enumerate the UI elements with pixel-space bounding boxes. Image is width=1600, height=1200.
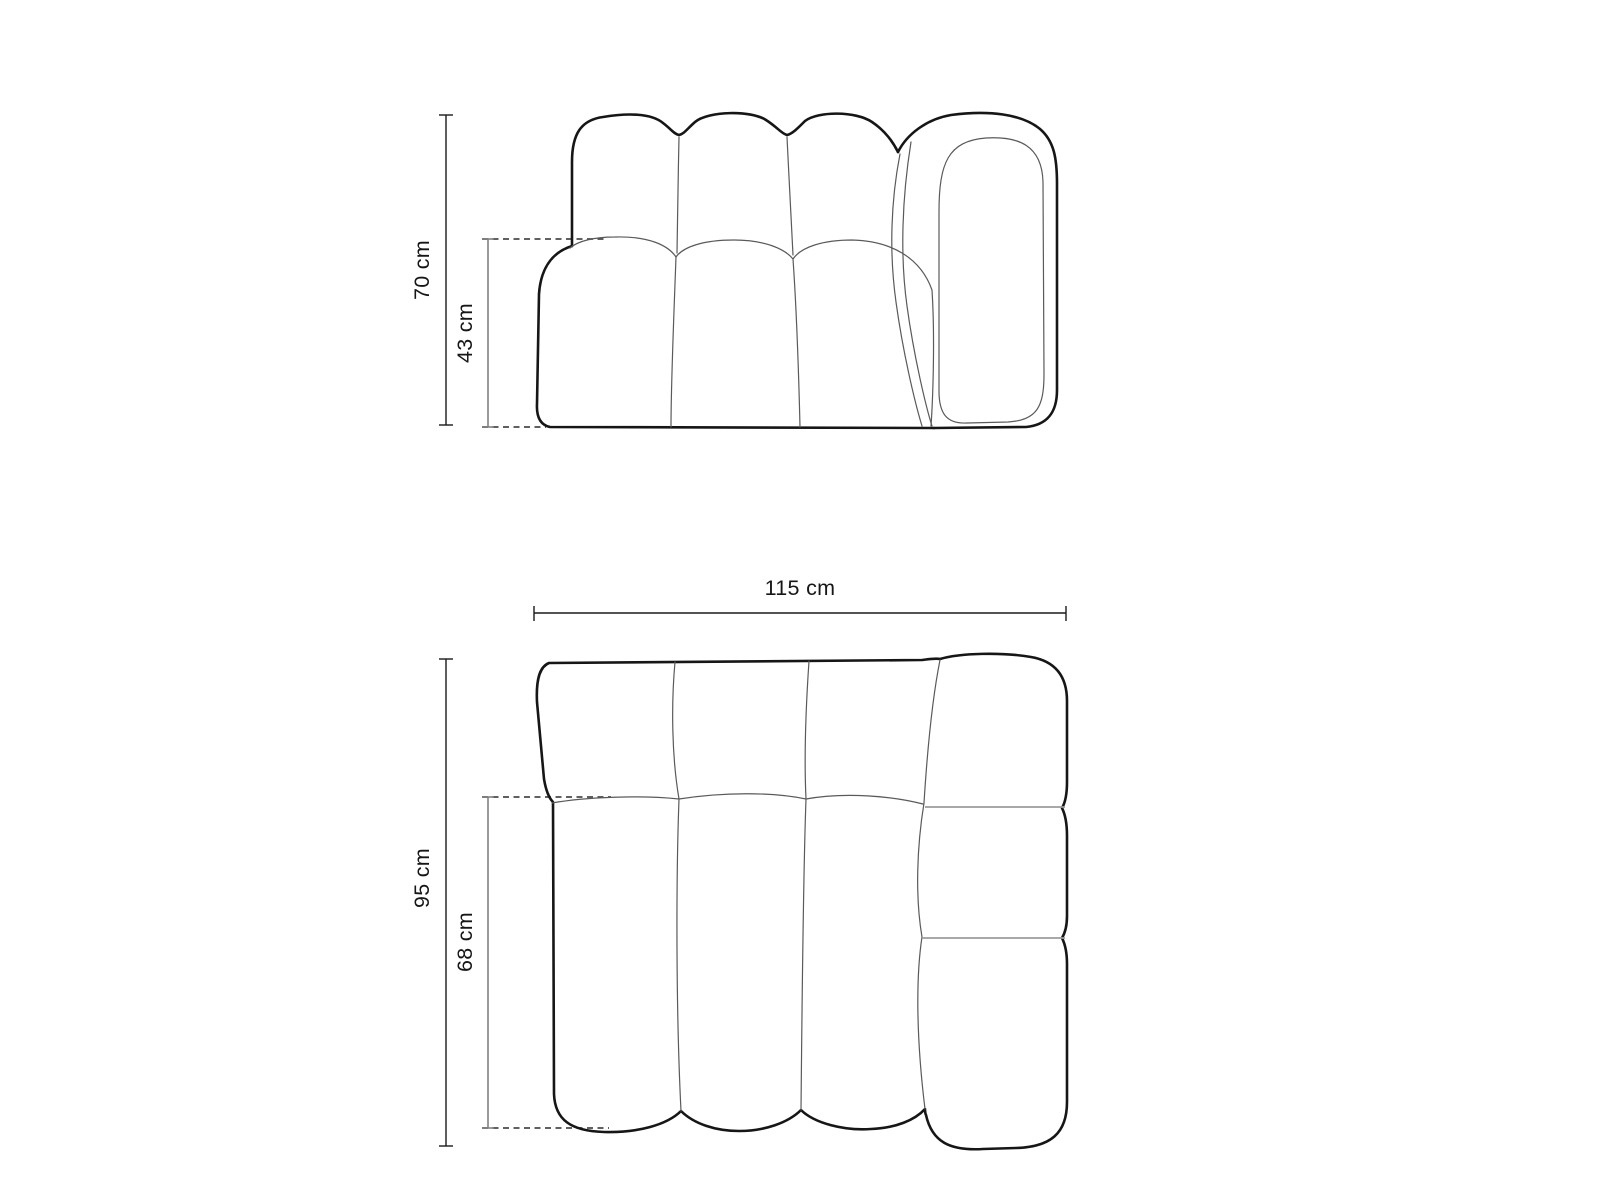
top-seat-divider-1 bbox=[677, 799, 681, 1111]
front-armrest-seam-outer bbox=[892, 154, 922, 426]
top-dimension-total-width: 115 cm bbox=[534, 576, 1066, 621]
dimension-label-seat-depth: 68 cm bbox=[453, 912, 477, 972]
front-seat-cushion-2-seam bbox=[676, 240, 800, 427]
front-armrest-inner-panel bbox=[939, 138, 1044, 423]
dimension-label-total-depth: 95 cm bbox=[410, 848, 434, 908]
front-backrest-divider-1 bbox=[677, 137, 679, 253]
front-seat-cushion-1-seam bbox=[570, 237, 676, 427]
top-dimension-total-depth: 95 cm bbox=[410, 659, 453, 1146]
top-backrest-divider-2 bbox=[805, 661, 809, 799]
top-backrest-front-seam bbox=[552, 794, 923, 804]
front-backrest-cushions bbox=[572, 113, 898, 246]
front-backrest-divider-2 bbox=[787, 137, 793, 255]
sofa-technical-drawing: 70 cm 43 cm 1 bbox=[0, 0, 1600, 1200]
drawing-svg: 70 cm 43 cm 1 bbox=[0, 0, 1600, 1200]
front-seat-cushion-3-seam bbox=[793, 240, 934, 426]
top-backrest-divider-1 bbox=[673, 662, 679, 799]
top-armrest-seam bbox=[918, 660, 940, 1109]
front-dimension-total-height: 70 cm bbox=[410, 115, 453, 425]
dimension-label-total-width: 115 cm bbox=[765, 576, 836, 600]
top-dimension-seat-depth: 68 cm bbox=[453, 797, 611, 1128]
dimension-label-seat-height: 43 cm bbox=[453, 303, 477, 363]
top-plan-view: 115 cm 95 cm 68 cm bbox=[410, 576, 1067, 1149]
front-armrest-seam-inner bbox=[903, 142, 932, 426]
dimension-label-total-height: 70 cm bbox=[410, 240, 434, 300]
top-seat-divider-2 bbox=[801, 799, 806, 1110]
front-sofa-silhouette bbox=[537, 246, 934, 428]
front-elevation-view: 70 cm 43 cm bbox=[410, 113, 1057, 428]
front-dimension-seat-height: 43 cm bbox=[453, 239, 494, 427]
